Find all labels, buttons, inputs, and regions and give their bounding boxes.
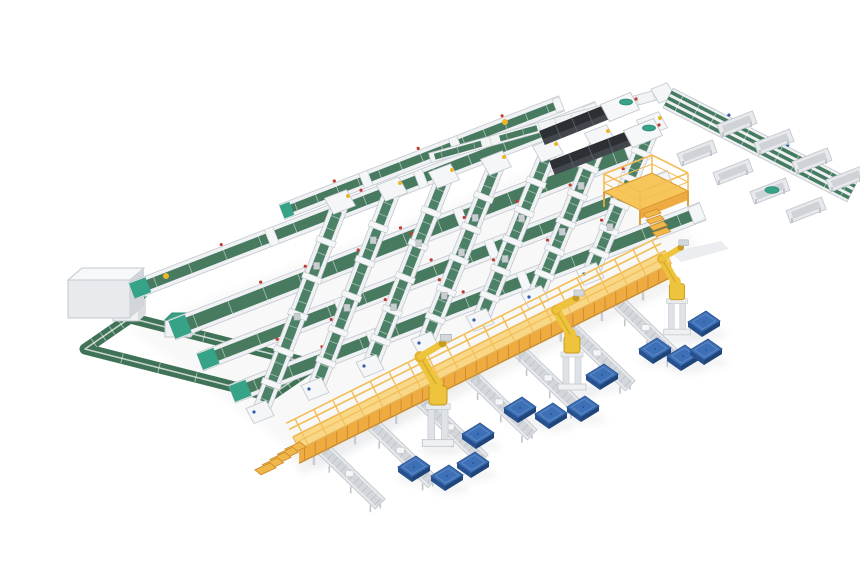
estop-dot <box>399 226 402 229</box>
parcel-box <box>294 313 300 320</box>
estop-dot <box>417 147 420 150</box>
scanner-dome-teal <box>620 99 633 105</box>
indicator-dot <box>634 97 637 100</box>
robot-pedestal <box>428 409 435 439</box>
estop-dot <box>462 290 465 293</box>
pallet-center-dot <box>413 466 415 468</box>
parcel-box <box>314 262 320 269</box>
pallet-center-dot <box>703 321 705 323</box>
pallet-center-dot <box>582 406 584 408</box>
robot-pedestal <box>563 357 569 384</box>
discharge-indicator <box>417 341 420 344</box>
estop-dot <box>330 318 333 321</box>
discharge-indicator <box>252 410 255 413</box>
spur-plate <box>346 470 354 476</box>
estop-dot <box>304 265 307 268</box>
sorting-system-render <box>0 0 860 580</box>
parcel-box <box>416 240 422 247</box>
estop-dot <box>500 114 503 117</box>
parcel-box <box>519 215 525 222</box>
sensor-dot <box>727 113 730 116</box>
discharge-indicator <box>527 295 530 298</box>
parcel-yellow <box>502 119 508 125</box>
estop-dot <box>438 278 441 281</box>
parcel-box <box>607 224 613 231</box>
estop-dot <box>276 338 279 341</box>
estop-dot <box>516 200 519 203</box>
discharge-chute-tray <box>786 197 826 223</box>
robot-base-plate <box>664 329 691 335</box>
spur-plate <box>396 447 404 453</box>
pallet-center-dot <box>550 413 552 415</box>
discharge-chute-tray <box>750 178 790 204</box>
pallet-center-dot <box>519 407 521 409</box>
robot-pedestal <box>575 357 581 384</box>
box-front <box>68 280 130 318</box>
head-indicator <box>398 181 402 185</box>
estop-dot <box>333 179 336 182</box>
spur-plate <box>642 325 650 331</box>
indicator-dot <box>657 123 660 126</box>
parcel-box <box>441 292 447 299</box>
robot-gripper <box>679 240 689 246</box>
estop-dot <box>259 281 262 284</box>
spur-plate <box>593 350 601 356</box>
head-indicator <box>502 155 506 159</box>
estop-dot <box>600 219 603 222</box>
estop-dot <box>359 189 362 192</box>
head-indicator <box>606 129 610 133</box>
robot-pedestal <box>680 304 686 330</box>
teal-tote <box>765 187 779 194</box>
pallet-center-dot <box>682 355 684 357</box>
pallet-center-dot <box>601 374 603 376</box>
discharge-chute-tray <box>713 159 753 185</box>
discharge-indicator <box>362 364 365 367</box>
parcel-box <box>502 255 508 262</box>
parcel-box <box>578 182 584 189</box>
parcel-yellow <box>163 273 169 279</box>
head-indicator <box>554 142 558 146</box>
spur-plate <box>495 399 503 405</box>
parcel-box <box>472 214 478 221</box>
robot-pedestal <box>441 409 448 439</box>
head-indicator <box>658 116 662 120</box>
pallet-center-dot <box>654 348 656 350</box>
robot-gripper <box>574 290 584 296</box>
parcel-box <box>559 228 565 235</box>
pallet-center-dot <box>705 349 707 351</box>
estop-dot <box>546 238 549 241</box>
estop-dot <box>569 183 572 186</box>
pallet-center-dot <box>477 433 479 435</box>
head-indicator <box>346 194 350 198</box>
estop-dot <box>430 258 433 261</box>
estop-dot <box>463 216 466 219</box>
discharge-indicator <box>307 387 310 390</box>
robot-pedestal <box>668 304 674 330</box>
parcel-box <box>370 237 376 244</box>
pallet-center-dot <box>446 475 448 477</box>
walkway-step <box>255 463 276 475</box>
pallet-center-dot <box>472 462 474 464</box>
estop-dot <box>384 298 387 301</box>
parcel-box <box>391 304 397 311</box>
robot-base-plate <box>422 440 453 447</box>
parcel-box <box>344 304 350 311</box>
estop-dot <box>410 232 413 235</box>
estop-dot <box>220 243 223 246</box>
robot-gripper <box>440 334 451 341</box>
scanner-dome-teal <box>643 125 656 131</box>
spur-plate <box>544 375 552 381</box>
head-indicator <box>450 168 454 172</box>
estop-dot <box>492 258 495 261</box>
estop-dot <box>357 248 360 251</box>
scene-canvas <box>0 0 860 580</box>
discharge-indicator <box>472 318 475 321</box>
discharge-chute-tray <box>677 140 717 166</box>
parcel-box <box>459 249 465 256</box>
robot-base-plate <box>558 384 586 390</box>
